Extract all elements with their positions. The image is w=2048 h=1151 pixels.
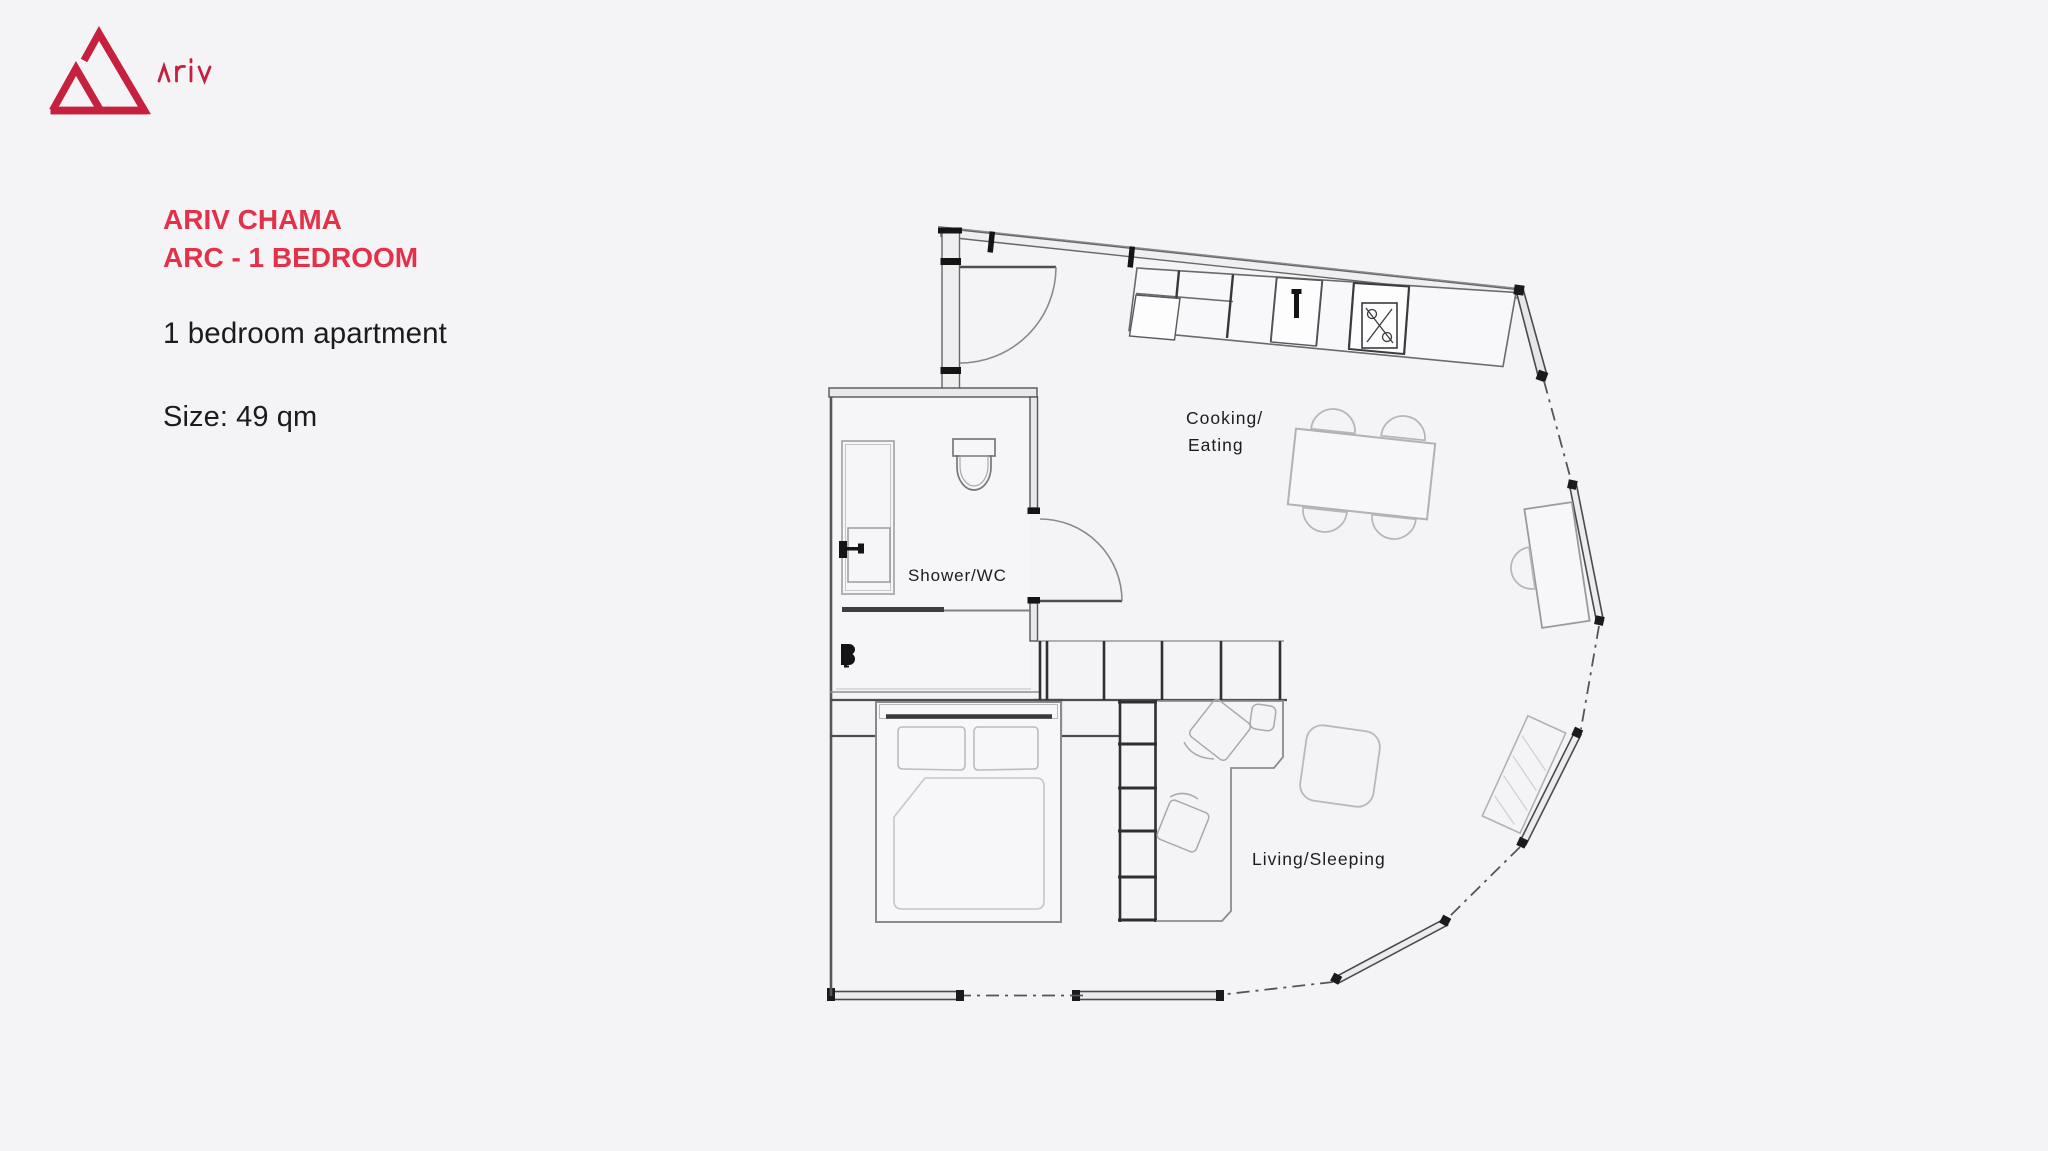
svg-text:Cooking/: Cooking/ bbox=[1186, 408, 1263, 428]
svg-text:Living/Sleeping: Living/Sleeping bbox=[1252, 849, 1386, 869]
svg-text:Shower/WC: Shower/WC bbox=[908, 566, 1007, 585]
svg-text:Eating: Eating bbox=[1188, 435, 1244, 455]
